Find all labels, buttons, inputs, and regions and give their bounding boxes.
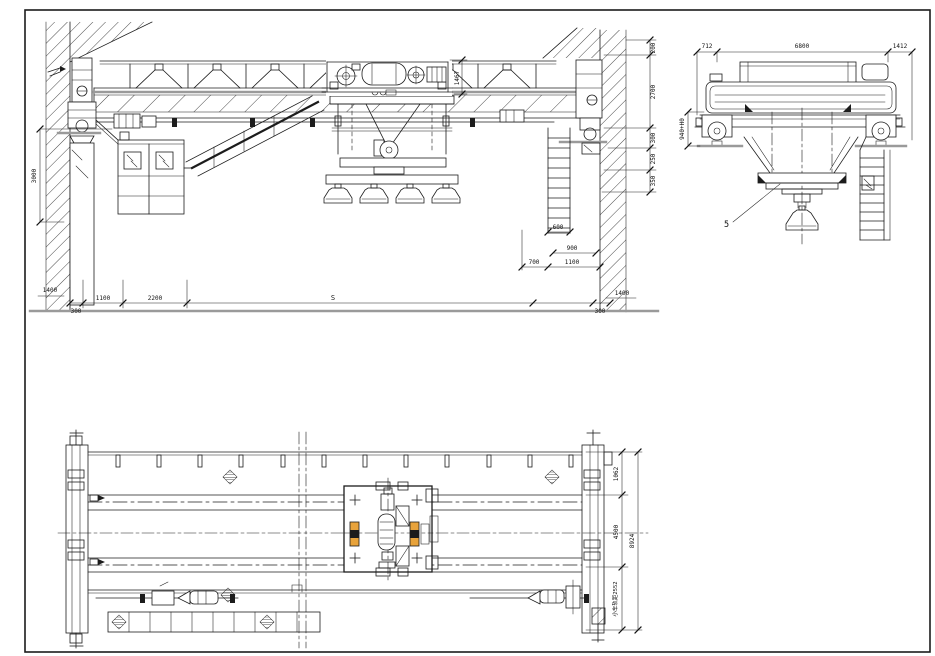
dim-600: 600: [553, 224, 564, 231]
dim-700: 700: [529, 259, 540, 266]
dim-span: S: [331, 294, 335, 302]
drive-shaft: [96, 110, 554, 128]
bridge-end-view: [695, 115, 906, 146]
dim-2200: 2200: [148, 295, 163, 302]
ladder-side: [860, 137, 890, 240]
dim-940h0: 940+H0: [679, 118, 686, 140]
dim-1100: 1100: [96, 295, 111, 302]
dim-right-300: 300: [595, 308, 606, 315]
dim-8924: 8924: [629, 533, 636, 548]
plan-end-carriage-right: [582, 430, 612, 642]
dim-200: 200: [650, 42, 657, 53]
hatch-mark: [545, 470, 559, 484]
dim-right-1400: 1400: [615, 290, 630, 297]
dim-300r: 300: [650, 132, 657, 143]
plan-view: 1062 4500 小车轨距2552 8924: [58, 430, 648, 648]
drawing-sheet: 3000 1467 200 2700 300 250 350 6: [0, 0, 935, 656]
trolley-side: [706, 62, 896, 113]
bottom-platform: [108, 612, 320, 632]
front-view: 3000 1467 200 2700 300 250 350 6: [30, 22, 658, 315]
dim-1412: 1412: [893, 43, 908, 50]
crane-drawing: 3000 1467 200 2700 300 250 350 6: [0, 0, 935, 656]
hatch-mark: [223, 470, 237, 484]
item-label-5: 5: [724, 220, 729, 230]
dim-350: 350: [650, 175, 657, 186]
trolley-wheel-left: [350, 522, 359, 546]
side-view: 712 6800 1412: [679, 43, 915, 244]
travel-drive-left: [96, 582, 238, 605]
plan-dimensions: 1062 4500 小车轨距2552 8924: [586, 449, 642, 633]
dim-gauge-2552: 小车轨距2552: [611, 581, 619, 616]
dim-6800: 6800: [795, 43, 810, 50]
dim-4500: 4500: [613, 524, 620, 539]
dim-712: 712: [702, 43, 713, 50]
dim-2700: 2700: [650, 84, 657, 99]
magnet-rig-side: 5: [724, 108, 858, 244]
hatch-mark: [112, 615, 126, 629]
railing-posts: [116, 455, 573, 467]
plan-end-carriage-left: [66, 430, 88, 648]
trolley-front: [322, 52, 452, 96]
rail-clamps: [90, 495, 105, 565]
dim-1467: 1467: [454, 70, 461, 85]
access-ladder-front: [548, 128, 570, 233]
dim-900: 900: [567, 245, 578, 252]
travel-drive-right: [470, 580, 589, 614]
dim-250: 250: [650, 153, 657, 164]
lifting-magnets: [324, 184, 460, 203]
dim-left-1400: 1400: [43, 287, 58, 294]
dim-left-300: 300: [71, 308, 82, 315]
dim-1100m: 1100: [565, 259, 580, 266]
hatch-mark: [260, 615, 274, 629]
dim-1062: 1062: [613, 466, 620, 481]
dim-3000: 3000: [31, 168, 38, 183]
operator-cab: [96, 120, 184, 214]
trolley-plan: [344, 478, 438, 580]
